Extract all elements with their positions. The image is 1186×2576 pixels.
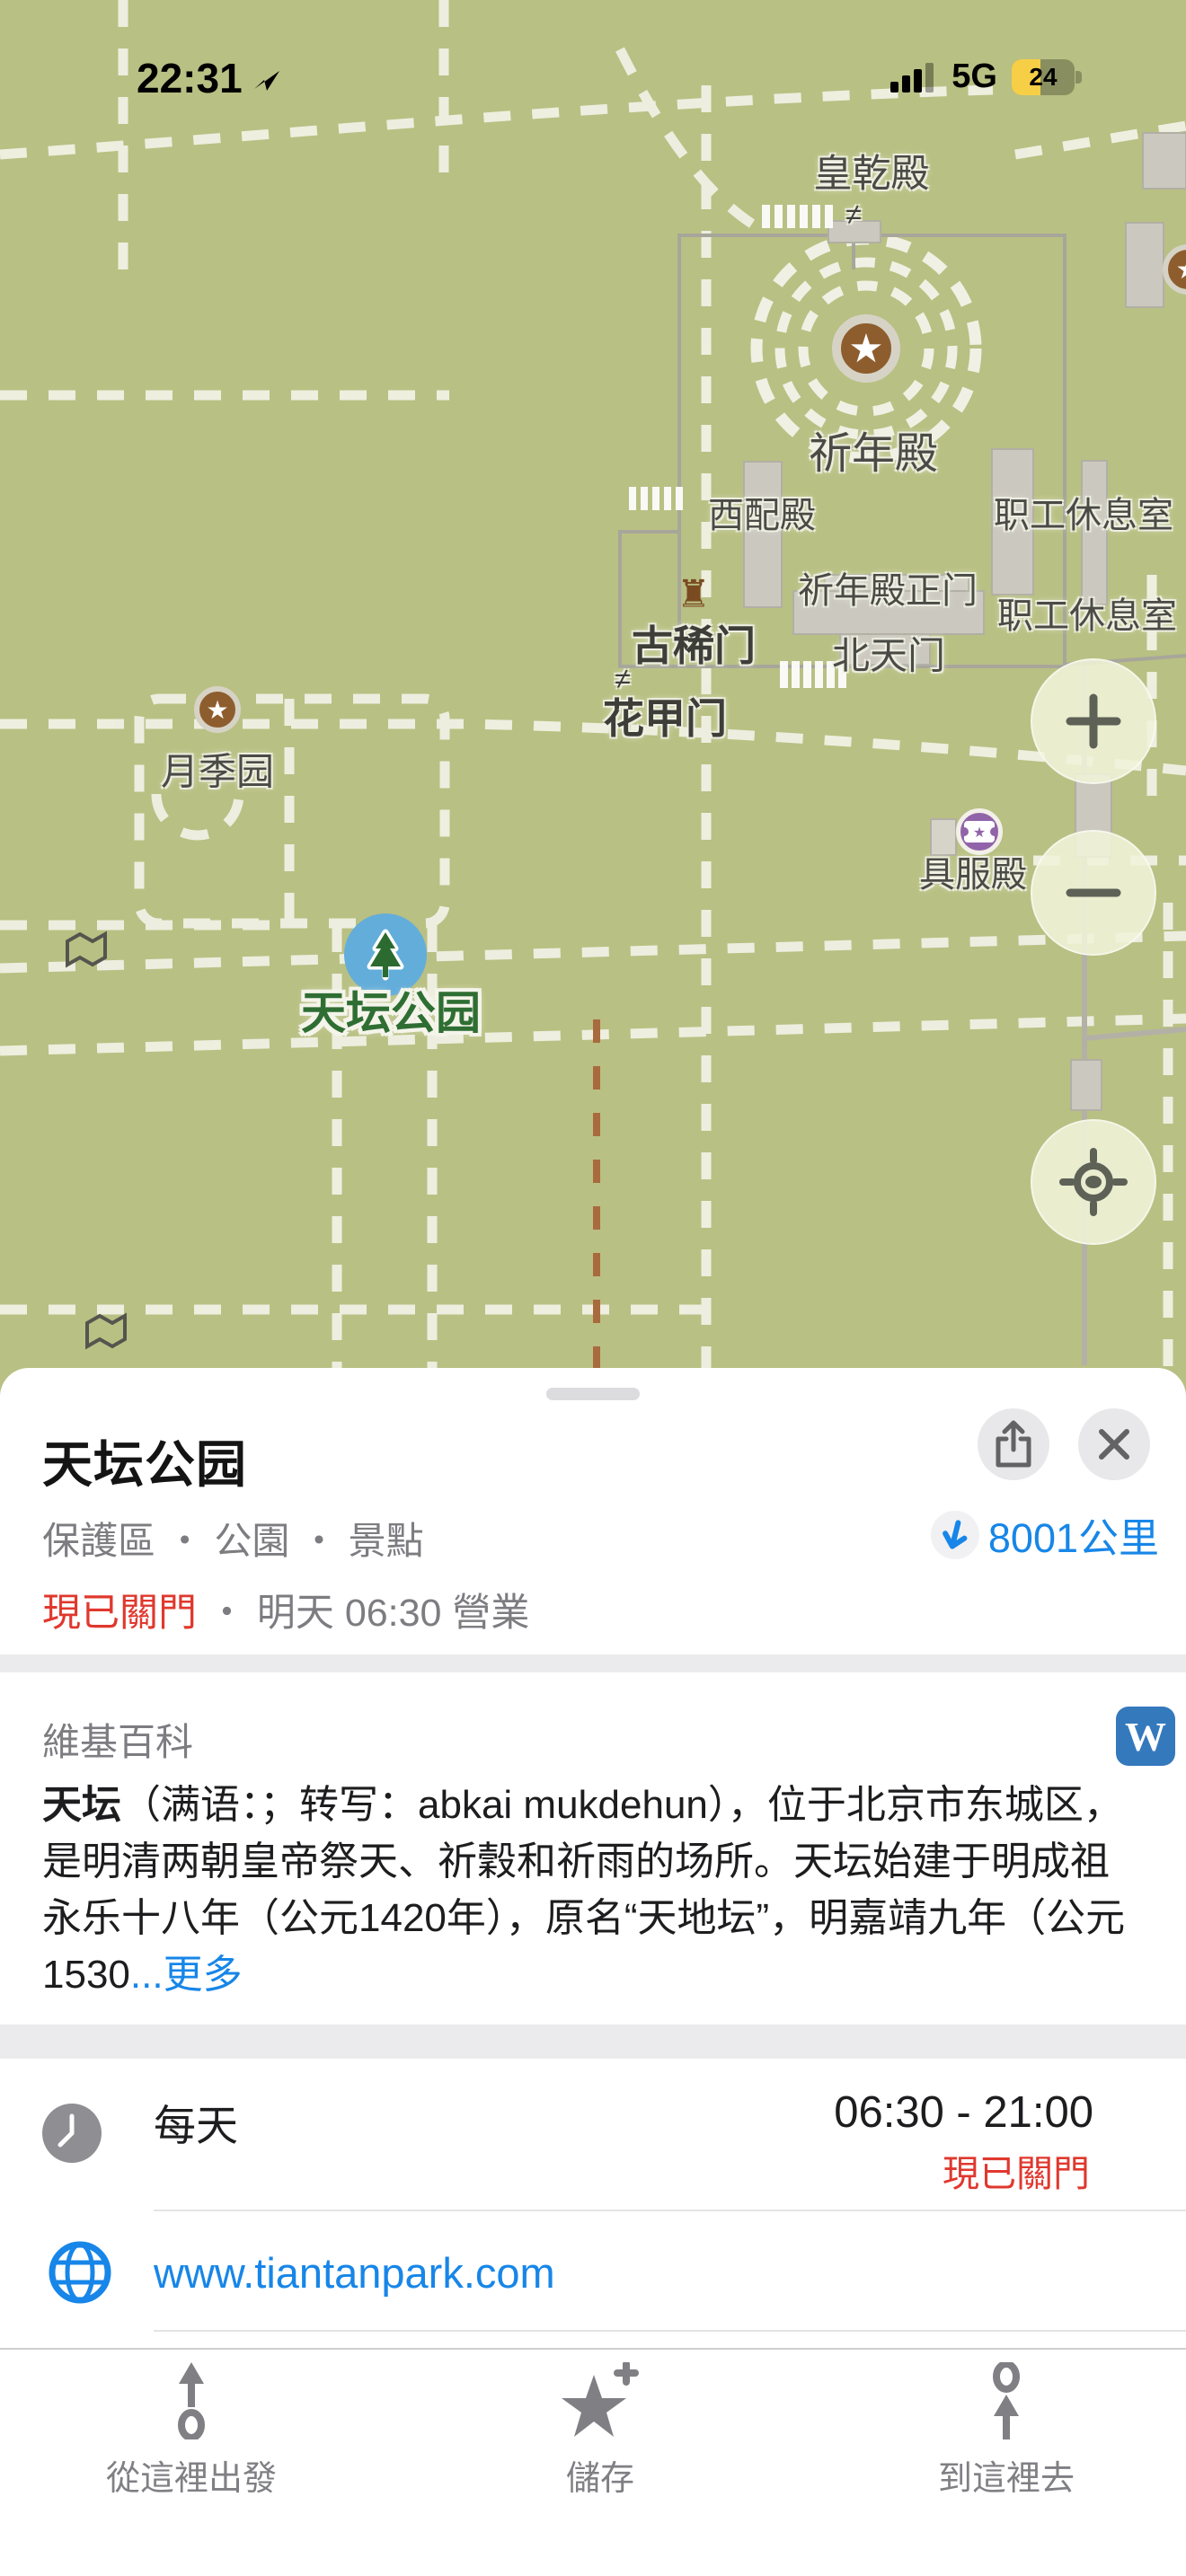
zoom-in-button[interactable]	[1031, 658, 1156, 784]
globe-icon	[48, 2240, 112, 2305]
map-label-zhigongxiuxishi-2: 职工休息室	[997, 587, 1177, 639]
section-gap	[0, 2025, 1186, 2059]
share-icon	[993, 1419, 1034, 1469]
map-label-qiniandian-zhengmen: 祈年殿正门	[798, 561, 978, 613]
status-time: 22:31	[137, 54, 243, 102]
tower-icon: ♜	[677, 572, 711, 616]
svg-text:★: ★	[973, 825, 986, 841]
star-icon: ★	[1176, 254, 1186, 286]
qinianden-star-poi[interactable]: ★	[832, 314, 900, 383]
website-link[interactable]: www.tiantanpark.com	[154, 2248, 555, 2298]
more-link[interactable]: ...更多	[130, 1953, 243, 1997]
map-label-guximen: 古稀门	[632, 613, 756, 673]
minus-icon	[1065, 864, 1122, 922]
directions-from-here-button[interactable]: 從這裡出發	[57, 2362, 326, 2500]
star-plus-icon	[560, 2362, 641, 2439]
map-label-zhigongxiuxishi-1: 职工休息室	[994, 486, 1173, 538]
save-button[interactable]: 儲存	[465, 2362, 735, 2500]
wikipedia-icon: W	[1116, 1707, 1175, 1766]
status-bar: 22:31 5G 24	[0, 54, 1186, 126]
gate-symbol: ≠	[845, 198, 862, 232]
zoom-out-button[interactable]	[1031, 830, 1156, 956]
directions-to-here-button[interactable]: 到這裡去	[872, 2362, 1141, 2500]
place-title: 天坛公园	[42, 1425, 247, 1497]
map-label-yuejiyuan: 月季园	[161, 742, 274, 797]
share-button[interactable]	[978, 1408, 1049, 1480]
map-decor-layer	[0, 0, 1186, 1406]
hours-day-label: 每天	[154, 2091, 238, 2153]
toolbar-label: 到這裡去	[938, 2450, 1075, 2500]
hours-closed-label: 現已關門	[943, 2143, 1090, 2197]
opens-tomorrow-label: ・ 明天 06:30 營業	[197, 1592, 529, 1635]
map-canvas[interactable]: 22:31 5G 24 ★ ★ ★ ★	[0, 0, 1186, 1406]
open-status-row: 現已關門 ・ 明天 06:30 營業	[42, 1582, 529, 1637]
network-type: 5G	[951, 57, 997, 96]
wikipedia-header: 維基百科	[42, 1712, 193, 1767]
place-category: 保護區 ・ 公園 ・ 景點	[42, 1511, 424, 1566]
toolbar-label: 儲存	[566, 2450, 634, 2500]
star-icon: ★	[206, 695, 228, 725]
map-label-beitianmen: 北天门	[832, 626, 945, 681]
sheet-drag-handle[interactable]	[546, 1388, 640, 1400]
ticket-icon: ★	[964, 821, 995, 842]
hours-time-range: 06:30 - 21:00	[834, 2087, 1093, 2138]
map-label-park-name: 天坛公园	[301, 977, 481, 1042]
close-button[interactable]	[1078, 1408, 1150, 1480]
map-label-huajiamen: 花甲门	[603, 686, 727, 745]
bottom-toolbar: 從這裡出發 儲存 到這裡去	[0, 2348, 1186, 2576]
section-gap	[0, 1654, 1186, 1672]
tree-icon	[360, 927, 411, 983]
map-label-qiniandian: 祈年殿	[809, 418, 938, 481]
yuejiyuan-star-poi[interactable]: ★	[194, 686, 241, 733]
crosshair-icon	[1059, 1148, 1128, 1216]
battery-percent: 24	[1012, 59, 1075, 95]
map-label-xipeidian: 西配殿	[708, 486, 816, 538]
route-to-icon	[978, 2362, 1034, 2439]
signal-icon	[890, 60, 937, 94]
direction-arrow-icon	[942, 1520, 969, 1550]
route-from-icon	[164, 2362, 219, 2439]
clock-icon	[42, 2104, 102, 2163]
star-icon: ★	[848, 326, 883, 372]
distance-chip[interactable]: 8001公里	[931, 1505, 1159, 1564]
distance-value: 8001公里	[988, 1505, 1159, 1564]
toolbar-label: 從這裡出發	[106, 2450, 277, 2500]
location-arrow-icon	[252, 63, 282, 93]
locate-me-button[interactable]	[1031, 1119, 1156, 1245]
close-icon	[1096, 1426, 1132, 1462]
battery-indicator: 24	[1012, 59, 1082, 95]
wikipedia-extract-lead: 天坛	[42, 1783, 121, 1827]
row-divider	[154, 2210, 1186, 2211]
map-label-huangqiandian: 皇乾殿	[814, 143, 930, 198]
closed-now-label: 現已關門	[42, 1592, 197, 1635]
map-label-jufudian: 具服殿	[919, 845, 1027, 897]
plus-icon	[1065, 693, 1122, 750]
wikipedia-extract: 天坛（满语：；转写：abkai mukdehun），位于北京市东城区，是明清两朝…	[42, 1777, 1146, 2003]
row-divider	[154, 2330, 1186, 2332]
